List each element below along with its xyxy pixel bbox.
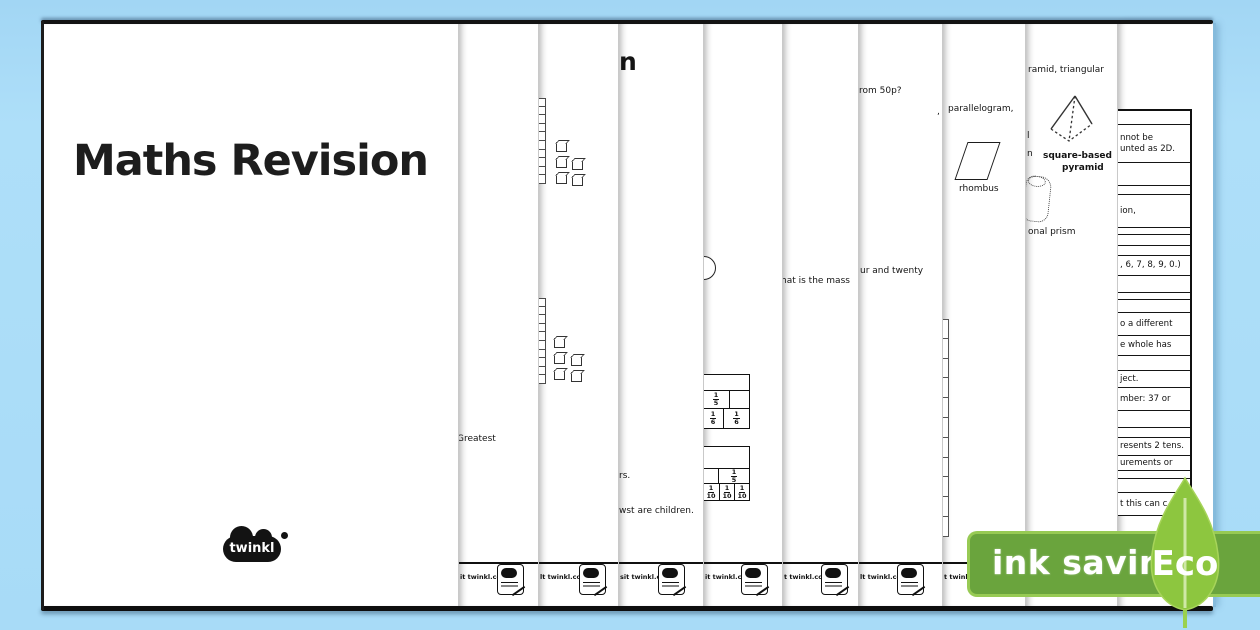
worksheet-page-7: rom 50p? ur and twenty , lt twinkl.com [858, 23, 943, 607]
base-ten-cube [556, 174, 567, 184]
worksheet-text: , [937, 107, 940, 117]
footer-rule [539, 562, 619, 564]
footer-url: t twink [944, 573, 970, 581]
eco-label: Eco [1146, 544, 1224, 584]
stack-bottom-edge [41, 606, 1213, 611]
worksheet-page-9: ramid, triangular l n square-based pyram… [1025, 23, 1118, 607]
twinkl-quality-badge-icon [497, 564, 524, 595]
base-ten-cube [556, 158, 567, 168]
shape-label: onal prism [1028, 227, 1075, 237]
twinkl-quality-badge-icon [579, 564, 606, 595]
base-ten-cube [572, 160, 583, 170]
square-based-pyramid-shape [1048, 93, 1094, 145]
twinkl-logo: twinkl [223, 536, 281, 562]
answers-table: nnot beunted as 2D.ion,, 6, 7, 8, 9, 0.)… [1118, 109, 1192, 516]
worksheet-text: ramid, triangular [1028, 65, 1104, 75]
worksheet-page-4: n rs. wst are children. sit twinkl.com [618, 23, 704, 607]
grid-column [942, 319, 950, 537]
worksheet-text: parallelogram, [948, 104, 1014, 114]
footer-rule [783, 562, 859, 564]
stack-left-edge [41, 21, 44, 610]
twinkl-quality-badge-icon [821, 564, 848, 595]
coin-icon [703, 256, 716, 280]
shape-label: square-based [1043, 151, 1112, 161]
worksheet-text: rom 50p? [859, 86, 902, 96]
twinkl-logo-dot-icon [281, 532, 288, 539]
worksheet-text: Greatest [458, 434, 496, 444]
base-ten-cube [556, 142, 567, 152]
prism-dotted-shape [1025, 175, 1052, 223]
worksheet-text: hat is the mass [782, 276, 850, 286]
page-title: Maths Revision [43, 136, 458, 186]
base-ten-cube [571, 356, 582, 366]
fraction-wall: 15 110 110 110 [703, 446, 750, 501]
fraction-wall: 15 16 16 [703, 374, 750, 429]
worksheet-page-3: lt twinkl.com [538, 23, 619, 607]
worksheet-text: l [1027, 131, 1030, 141]
base-ten-cube [571, 372, 582, 382]
resource-preview: Maths Revision twinkl Greatest it twinkl… [0, 0, 1260, 630]
base-ten-rod [538, 98, 547, 184]
base-ten-cube [572, 176, 583, 186]
stack-top-edge [41, 20, 1213, 24]
base-ten-rod [538, 298, 547, 384]
base-ten-cube [554, 338, 565, 348]
worksheet-page-5: 15 16 16 15 110 110 110 [703, 23, 783, 607]
worksheet-page-2: Greatest it twinkl.com [458, 23, 539, 607]
cover-page: Maths Revision twinkl [43, 23, 458, 607]
rhombus-shape [954, 142, 1000, 180]
shape-label: rhombus [959, 184, 999, 194]
worksheet-text: n [1027, 149, 1033, 159]
twinkl-quality-badge-icon [658, 564, 685, 595]
twinkl-logo-text: twinkl [223, 536, 281, 561]
eco-leaf-icon: Eco [1146, 476, 1224, 630]
worksheet-page-6: hat is the mass t twinkl.com [782, 23, 859, 607]
title-fragment: n [619, 47, 637, 76]
shape-label: pyramid [1062, 163, 1104, 173]
base-ten-cube [554, 370, 565, 380]
base-ten-cube [554, 354, 565, 364]
worksheet-text: ur and twenty [860, 266, 923, 276]
worksheet-text: wst are children. [619, 506, 694, 516]
worksheet-page-8: parallelogram, rhombus t twink [942, 23, 1026, 607]
twinkl-quality-badge-icon [897, 564, 924, 595]
worksheet-text: rs. [619, 471, 630, 481]
page-stack: Maths Revision twinkl Greatest it twinkl… [43, 23, 1212, 607]
twinkl-quality-badge-icon [741, 564, 768, 595]
